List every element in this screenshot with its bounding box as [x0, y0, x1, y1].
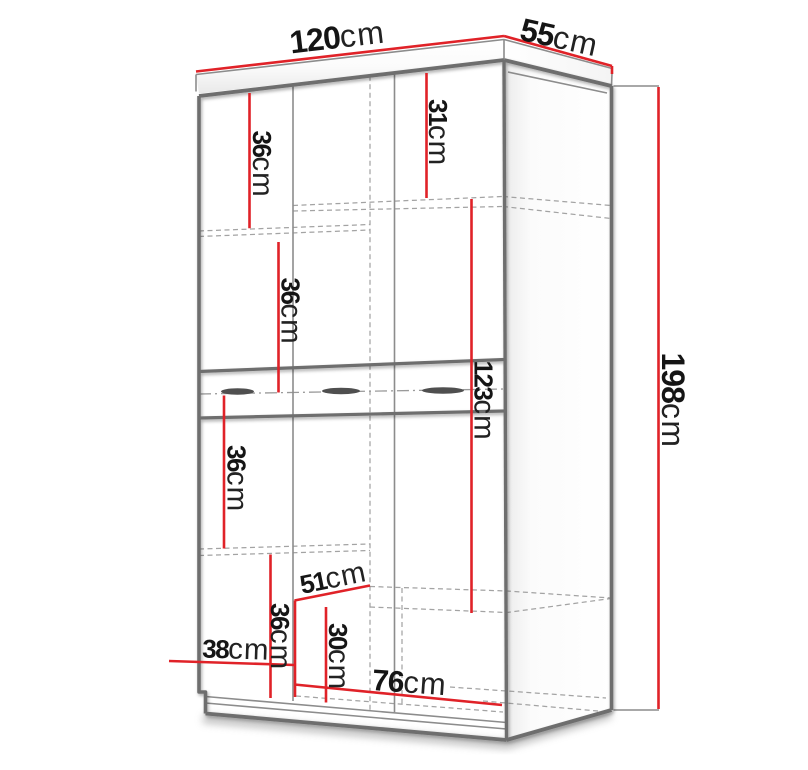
svg-text:36cm: 36cm — [246, 131, 279, 198]
svg-text:38cm: 38cm — [202, 632, 270, 667]
svg-text:36cm: 36cm — [221, 445, 254, 512]
svg-text:76cm: 76cm — [371, 662, 448, 702]
svg-text:198cm: 198cm — [655, 353, 691, 449]
svg-text:36cm: 36cm — [275, 278, 308, 345]
svg-text:30cm: 30cm — [322, 623, 355, 690]
svg-text:123cm: 123cm — [468, 361, 501, 441]
svg-text:31cm: 31cm — [422, 99, 455, 166]
